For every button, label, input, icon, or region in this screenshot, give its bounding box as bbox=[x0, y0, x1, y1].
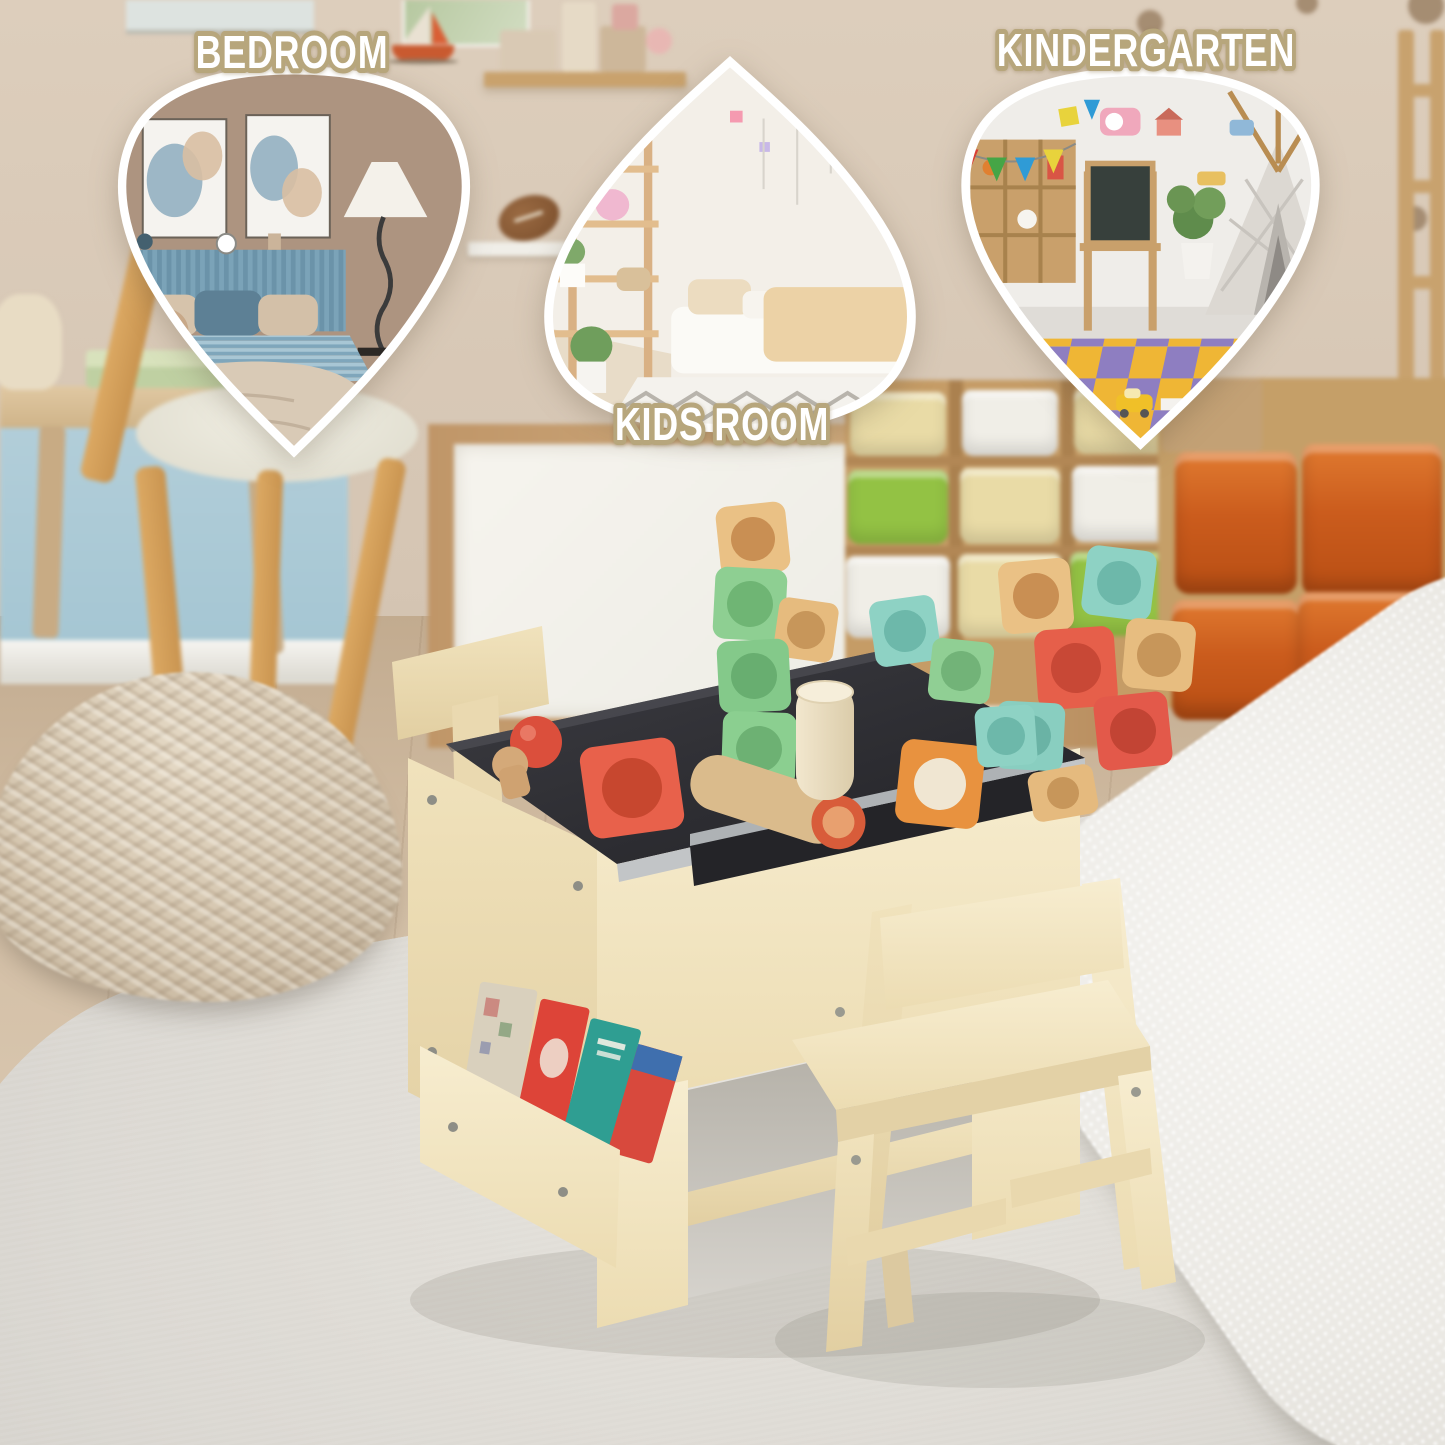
bedroom-callout bbox=[95, 58, 493, 466]
dresser bbox=[425, 295, 485, 393]
kids-room-label-text: KIDS ROOM bbox=[615, 399, 829, 450]
basket bbox=[617, 268, 651, 292]
screw bbox=[427, 795, 437, 805]
screw bbox=[1131, 1087, 1141, 1097]
pillow bbox=[195, 291, 263, 336]
book-art bbox=[483, 997, 500, 1017]
screw bbox=[851, 1155, 861, 1165]
book-art bbox=[479, 1041, 491, 1054]
blanket bbox=[764, 287, 924, 361]
kindergarten-scene bbox=[938, 60, 1343, 458]
kids-room-callout bbox=[520, 48, 940, 440]
pillow bbox=[258, 295, 318, 336]
kindergarten-label-text: KINDERGARTEN bbox=[997, 25, 1295, 76]
bedroom-label-text: BEDROOM bbox=[196, 27, 389, 78]
ball-highlight bbox=[520, 725, 536, 741]
screw bbox=[558, 1187, 568, 1197]
kindergarten-callout bbox=[938, 60, 1343, 458]
bedroom-label: BEDROOM bbox=[70, 14, 520, 84]
product-lifestyle-photo: BEDROOM KIDS ROOM KINDERGARTEN bbox=[0, 0, 1445, 1445]
screw bbox=[835, 1007, 845, 1017]
wall-note bbox=[759, 142, 770, 152]
bedroom-scene bbox=[95, 58, 493, 466]
book-art bbox=[498, 1022, 512, 1038]
cylinder-top bbox=[797, 681, 853, 703]
kids-room-label: KIDS ROOM bbox=[512, 386, 932, 456]
clock bbox=[217, 234, 236, 254]
kids-room-scene bbox=[520, 48, 940, 440]
toy-block-red bbox=[578, 736, 686, 840]
screw bbox=[448, 1122, 458, 1132]
wall-note bbox=[730, 111, 743, 123]
screw bbox=[573, 881, 583, 891]
kindergarten-label: KINDERGARTEN bbox=[900, 12, 1400, 84]
pillow bbox=[688, 279, 751, 314]
